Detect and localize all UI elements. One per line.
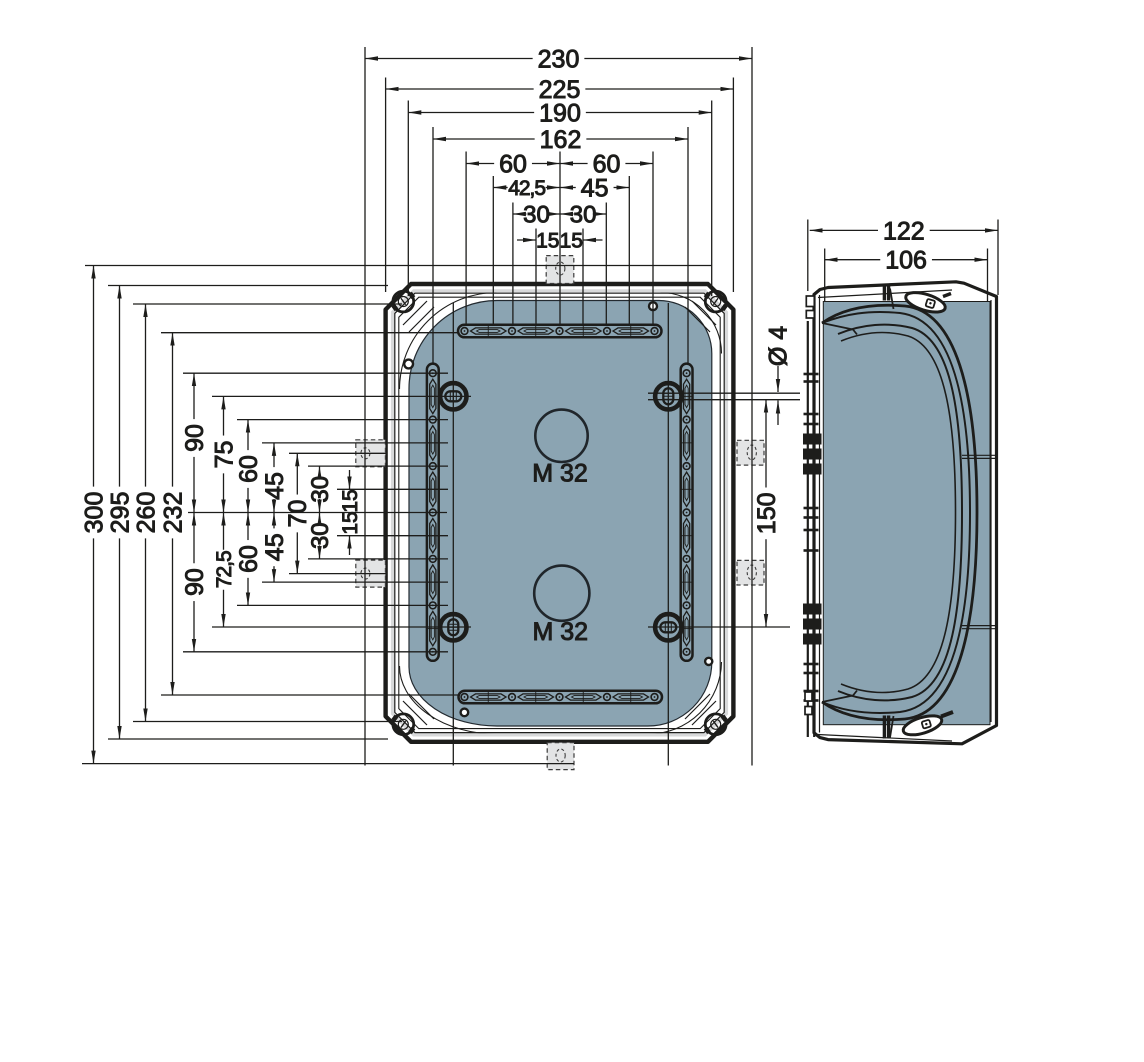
svg-text:72,5: 72,5 bbox=[213, 551, 236, 588]
svg-text:M 32: M 32 bbox=[532, 460, 588, 488]
svg-text:260: 260 bbox=[132, 492, 160, 534]
svg-text:162: 162 bbox=[540, 126, 582, 154]
svg-text:190: 190 bbox=[539, 99, 581, 127]
svg-text:150: 150 bbox=[753, 492, 781, 534]
svg-text:60: 60 bbox=[499, 150, 527, 178]
svg-text:M 32: M 32 bbox=[533, 618, 589, 646]
svg-text:30: 30 bbox=[570, 202, 597, 229]
svg-text:45: 45 bbox=[261, 472, 289, 500]
svg-text:15: 15 bbox=[560, 229, 583, 252]
svg-text:30: 30 bbox=[523, 202, 550, 229]
svg-text:30: 30 bbox=[307, 522, 334, 549]
svg-text:15: 15 bbox=[339, 489, 362, 512]
svg-text:106: 106 bbox=[885, 247, 927, 275]
svg-text:45: 45 bbox=[261, 533, 289, 561]
svg-text:15: 15 bbox=[536, 229, 559, 252]
svg-text:42,5: 42,5 bbox=[508, 177, 545, 200]
svg-text:45: 45 bbox=[581, 174, 609, 202]
svg-text:60: 60 bbox=[235, 545, 263, 573]
svg-text:122: 122 bbox=[883, 217, 925, 245]
svg-text:15: 15 bbox=[339, 511, 362, 534]
svg-text:295: 295 bbox=[106, 492, 134, 534]
svg-text:230: 230 bbox=[538, 45, 580, 73]
svg-text:300: 300 bbox=[80, 492, 108, 534]
svg-text:60: 60 bbox=[235, 455, 263, 483]
svg-text:232: 232 bbox=[159, 492, 187, 534]
svg-text:90: 90 bbox=[181, 568, 209, 596]
svg-text:Ø 4: Ø 4 bbox=[764, 326, 792, 366]
svg-text:30: 30 bbox=[307, 476, 334, 503]
svg-text:90: 90 bbox=[181, 424, 209, 452]
